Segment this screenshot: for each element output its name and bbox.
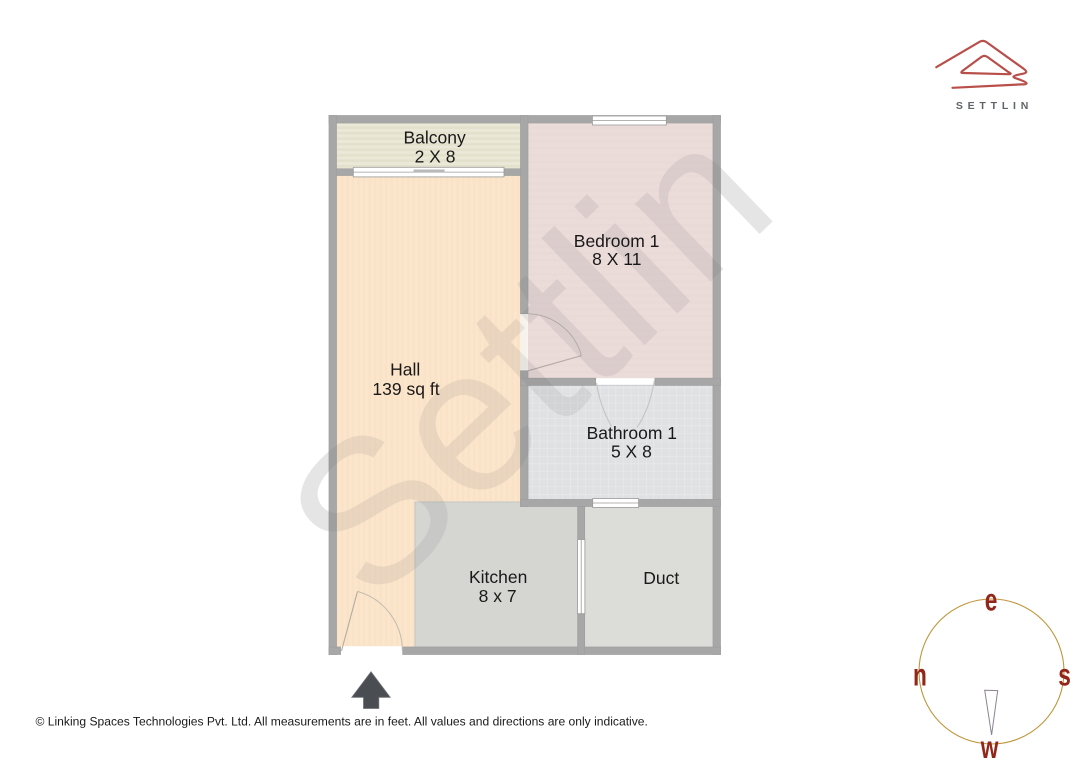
svg-text:SETTLIN: SETTLIN xyxy=(956,100,1033,112)
svg-text:Bathroom 1: Bathroom 1 xyxy=(587,423,677,443)
svg-text:© Linking Spaces Technologies: © Linking Spaces Technologies Pvt. Ltd. … xyxy=(36,715,648,729)
svg-text:8 X 11: 8 X 11 xyxy=(592,249,641,269)
svg-text:w: w xyxy=(980,729,999,764)
svg-text:s: s xyxy=(1058,657,1071,693)
svg-text:n: n xyxy=(913,657,927,693)
svg-text:5 X 8: 5 X 8 xyxy=(611,442,652,462)
svg-text:Kitchen: Kitchen xyxy=(469,567,527,587)
svg-text:2 X 8: 2 X 8 xyxy=(415,146,456,166)
svg-text:e: e xyxy=(985,582,998,618)
svg-text:8 x 7: 8 x 7 xyxy=(479,586,517,606)
svg-text:139 sq ft: 139 sq ft xyxy=(372,379,439,399)
svg-text:Balcony: Balcony xyxy=(403,128,466,148)
svg-text:Duct: Duct xyxy=(643,568,679,588)
svg-text:Hall: Hall xyxy=(390,360,420,380)
